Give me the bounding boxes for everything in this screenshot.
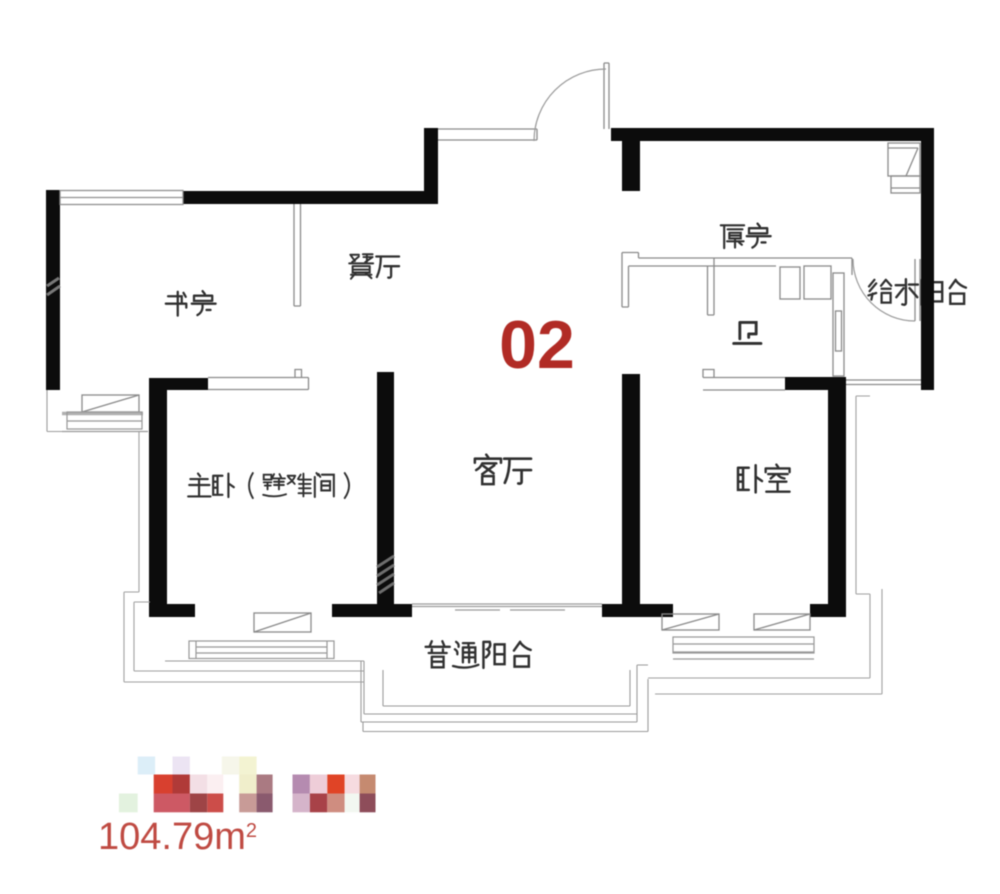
- svg-text:02: 02: [499, 307, 575, 383]
- svg-text:104.79m2: 104.79m2: [98, 816, 257, 858]
